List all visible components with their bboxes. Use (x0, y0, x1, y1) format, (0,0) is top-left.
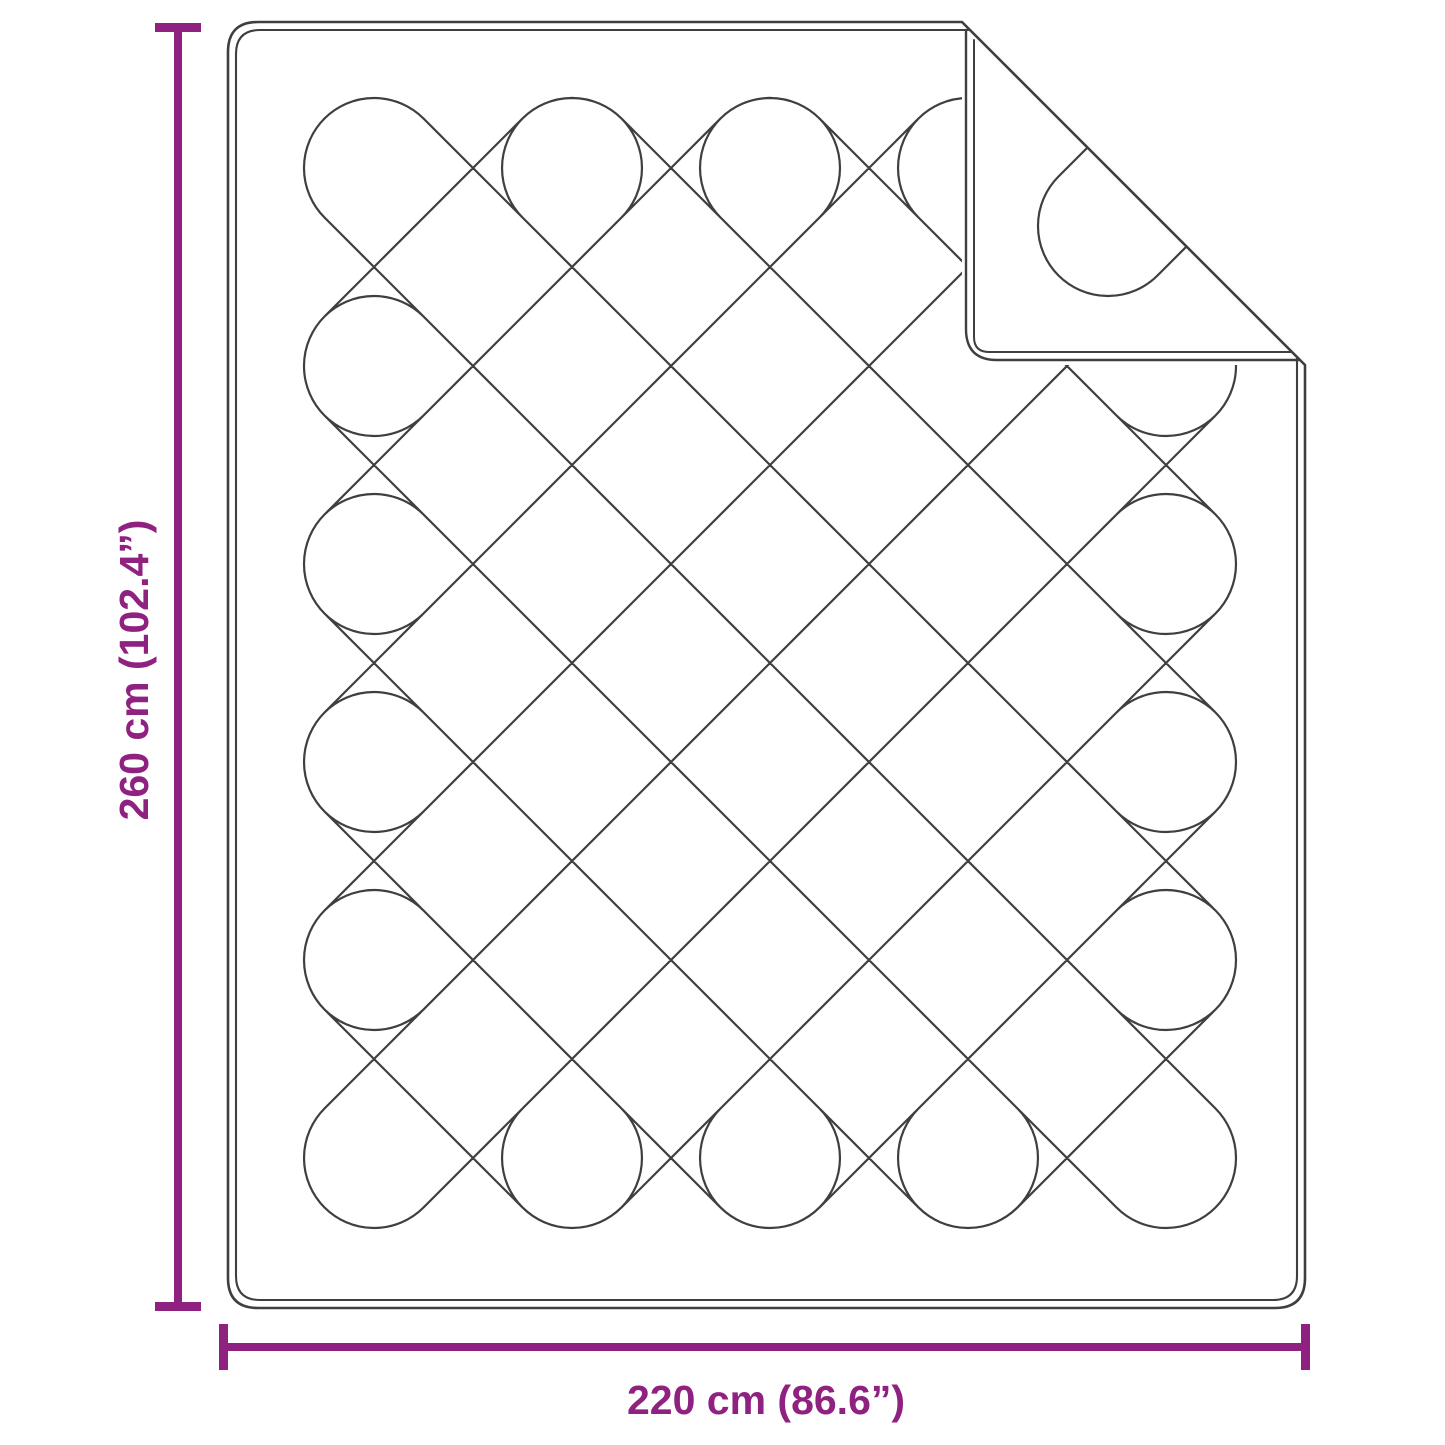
height-dimension-line (174, 27, 182, 1307)
height-dimension: 260 cm (102.4”) (111, 23, 201, 1311)
height-dimension-cap-top (155, 23, 201, 32)
width-dimension-cap-right (1301, 1324, 1310, 1370)
width-dimension-line (223, 1343, 1308, 1351)
width-dimension: 220 cm (86.6”) (219, 1324, 1310, 1423)
height-dimension-cap-bottom (155, 1302, 201, 1311)
product-diagram: 260 cm (102.4”) 220 cm (86.6”) (0, 0, 1445, 1445)
width-dimension-label: 220 cm (86.6”) (627, 1377, 905, 1423)
width-dimension-cap-left (219, 1324, 228, 1370)
height-dimension-label: 260 cm (102.4”) (111, 520, 157, 821)
blanket-diagram-svg: 260 cm (102.4”) 220 cm (86.6”) (0, 0, 1445, 1445)
